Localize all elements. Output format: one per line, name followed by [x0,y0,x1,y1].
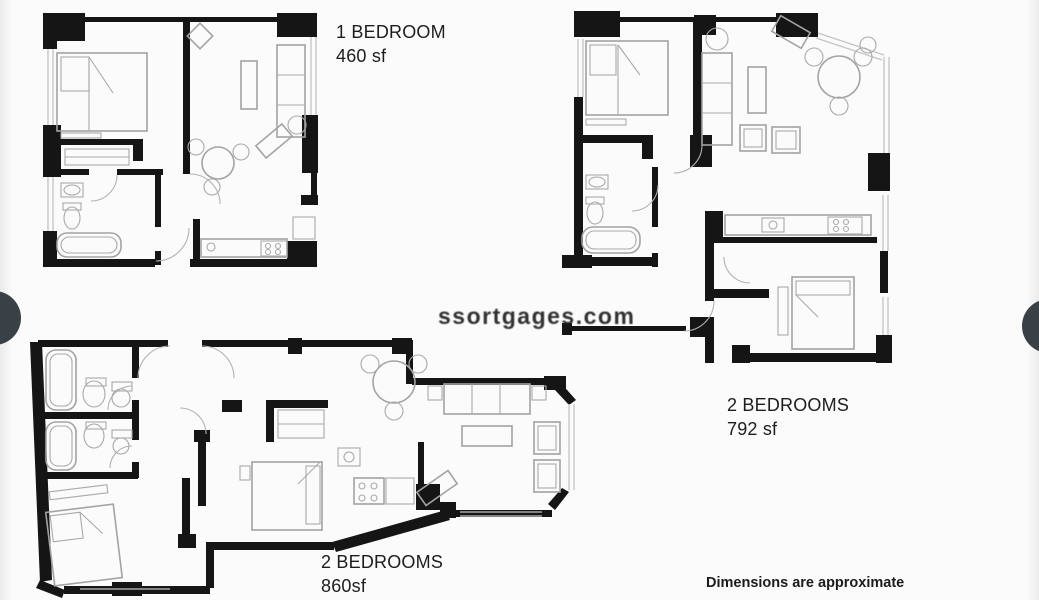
bathroom-fixtures [57,183,121,257]
plan-area: 860sf [321,575,443,599]
coffee-table-icon [462,426,512,446]
plan-label-2br-860: 2 BEDROOMS 860sf [321,551,443,599]
floorplan-gallery-viewport: 1 BEDROOM 460 sf 2 BEDROOMS 792 sf 2 BED… [0,0,1039,600]
dimensions-disclaimer: Dimensions are approximate [706,575,904,591]
chevron-left-icon: ❮ [0,308,2,329]
previous-image-button[interactable]: ❮ [0,291,21,345]
kitchen-icons [338,448,414,504]
bed-icon-2 [778,277,854,349]
plan-area: 460 sf [336,45,446,69]
watermark-text: ssortgages.com [438,303,635,330]
door-arcs [108,346,234,468]
plan-name: 1 BEDROOM [336,21,446,45]
plan-name: 2 BEDROOMS [727,394,849,418]
bathroom-fixtures [582,175,640,253]
sofa-icon [428,384,546,414]
bed-icon [57,53,147,138]
bed-icon [586,41,668,125]
plan-label-1br: 1 BEDROOM 460 sf [336,21,446,69]
plan-label-2br-792: 2 BEDROOMS 792 sf [727,394,849,442]
light-fixture-icon [187,23,212,48]
sofa-icon [277,45,305,137]
next-image-button[interactable]: ❯ [1022,299,1039,353]
coffee-table-icon [241,61,257,109]
walls [30,338,576,598]
coffee-table-icon [748,67,766,113]
plan-area: 792 sf [727,418,849,442]
bed-icon-1 [43,484,122,586]
dining-table-icon [805,37,876,115]
closet-icon [278,410,324,438]
floorplan-1-bedroom [25,5,325,270]
bathroom-fixtures-1 [46,350,132,410]
bed-icon-2 [240,462,322,530]
bathroom-fixtures-2 [46,422,132,470]
plan-name: 2 BEDROOMS [321,551,443,575]
sofa-icon [702,28,732,145]
right-edge-fade [1027,0,1039,600]
floorplan-2-bedrooms-860 [20,330,580,600]
kitchen-icons [725,215,871,235]
closet-icon [65,149,129,165]
dining-table-icon [361,355,427,420]
dining-table-icon [188,139,249,195]
